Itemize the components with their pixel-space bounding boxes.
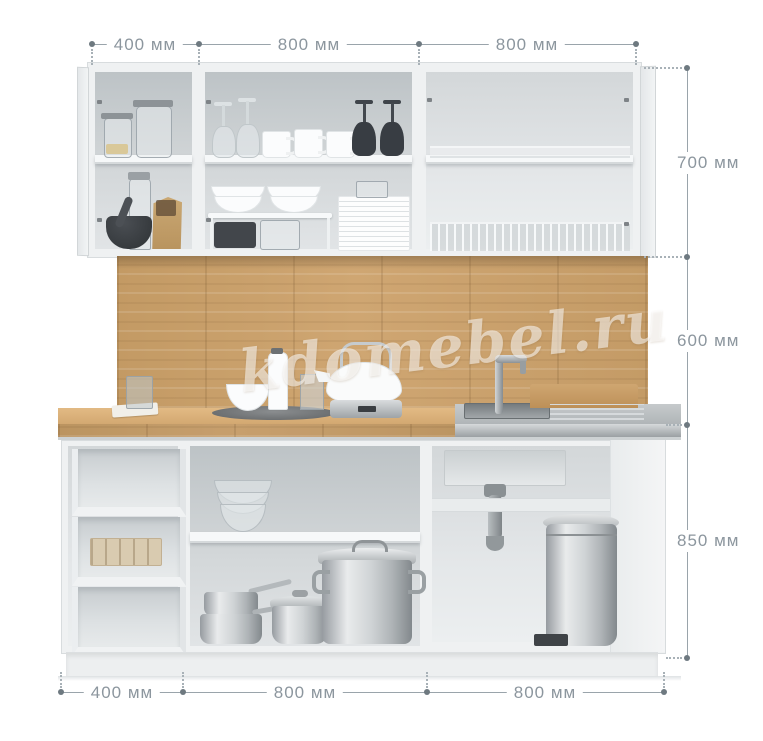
lid-knob — [292, 590, 308, 597]
plinth — [66, 652, 658, 677]
pedal-bin-body — [546, 524, 617, 646]
hinge-icon — [206, 218, 211, 222]
wire-rail — [430, 146, 630, 158]
wine-glass-dark — [380, 100, 404, 156]
dimension-dot — [684, 254, 690, 260]
dimension-dot — [684, 422, 690, 428]
hinge-icon — [624, 222, 629, 226]
right-dim-label-600: 600 мм — [670, 330, 746, 352]
right-dim-label-850: 850 мм — [670, 530, 746, 552]
wine-glass-clear — [236, 98, 258, 156]
extension-line — [666, 657, 682, 659]
extension-line — [635, 49, 637, 65]
plate-stack — [338, 196, 410, 251]
dimension-dot — [424, 689, 430, 695]
extension-line — [663, 672, 665, 688]
cabinet-shadow — [117, 256, 648, 269]
hinge-icon — [97, 100, 102, 104]
cabinet-stretcher — [432, 498, 610, 512]
bottle-cap — [128, 172, 150, 180]
extension-line — [60, 672, 62, 688]
dimension-dot — [89, 41, 95, 47]
bin-pedal — [534, 634, 568, 646]
countertop-steel-edge — [455, 424, 681, 437]
faucet-spout — [520, 361, 526, 374]
bottom-dim-label-800b: 800 мм — [507, 682, 583, 704]
bag-pattern — [156, 200, 176, 216]
wine-glass-clear — [212, 102, 234, 156]
jar-grains — [106, 144, 128, 154]
drawer-open-bottom — [72, 587, 186, 656]
extension-line — [644, 256, 682, 258]
drawer-open-top — [72, 449, 186, 516]
dimension-dot — [180, 689, 186, 695]
extension-line — [426, 672, 428, 688]
stockpot-handle-right — [408, 570, 426, 594]
drinking-glass — [126, 376, 153, 409]
glass-box — [260, 220, 300, 250]
dimension-dot — [633, 41, 639, 47]
dimension-dot — [684, 65, 690, 71]
pedal-bin-rim — [546, 534, 617, 536]
top-dim-label-800a: 800 мм — [271, 34, 347, 56]
extension-line — [644, 67, 682, 69]
glass-bowl-stack — [214, 480, 270, 532]
extension-line — [198, 49, 200, 65]
dimension-dot — [416, 41, 422, 47]
floor-shadow — [58, 676, 681, 681]
top-dim-label-400: 400 мм — [107, 34, 183, 56]
dark-cups — [214, 222, 256, 248]
white-bottle-grinder — [268, 352, 288, 410]
glass-jar-large — [136, 106, 172, 158]
bottom-dim-label-800a: 800 мм — [267, 682, 343, 704]
hinge-icon — [206, 100, 211, 104]
dimension-dot — [661, 689, 667, 695]
countertop-wood-edge — [58, 424, 458, 437]
stockpot-handle-left — [312, 570, 330, 594]
dimension-dot — [196, 41, 202, 47]
jar-lid — [133, 100, 173, 107]
saucepan-small — [204, 592, 258, 616]
extension-line — [91, 49, 93, 65]
saucepan-large — [200, 614, 262, 644]
lidded-pan — [272, 606, 328, 644]
bottom-dim-label-400: 400 мм — [84, 682, 160, 704]
siphon-trap — [486, 536, 504, 551]
upper-right-door-open — [640, 66, 656, 259]
upper-left-door-open — [77, 67, 89, 256]
hinge-icon — [624, 98, 629, 102]
grinder-top — [271, 348, 283, 354]
hinge-icon — [427, 98, 432, 102]
wine-glass-dark — [352, 100, 376, 156]
hinge-icon — [97, 218, 102, 222]
extension-line — [418, 49, 420, 65]
extension-line — [182, 672, 184, 688]
stockpot — [322, 560, 412, 644]
under-sink-drawer — [444, 450, 566, 486]
right-dim-label-700: 700 мм — [670, 152, 746, 174]
jar-lid — [101, 113, 133, 119]
faucet-riser — [495, 356, 503, 414]
dish-drying-rack — [430, 222, 630, 254]
base-shelf — [190, 532, 420, 543]
dimension-dot — [684, 655, 690, 661]
extension-line — [666, 424, 682, 426]
cutlery-tray — [90, 538, 162, 566]
stockpot-lid-handle — [352, 540, 388, 552]
top-dim-label-800b: 800 мм — [489, 34, 565, 56]
sink-cabinet-side-panel — [610, 440, 665, 652]
glass-cup-on-plates — [356, 181, 388, 198]
hotplate-display — [358, 406, 376, 412]
dimension-dot — [58, 689, 64, 695]
drying-rods — [550, 404, 644, 420]
kitchen-dimension-diagram: kdomebel.ru 400 мм 800 мм 800 мм 700 мм … — [0, 0, 763, 741]
